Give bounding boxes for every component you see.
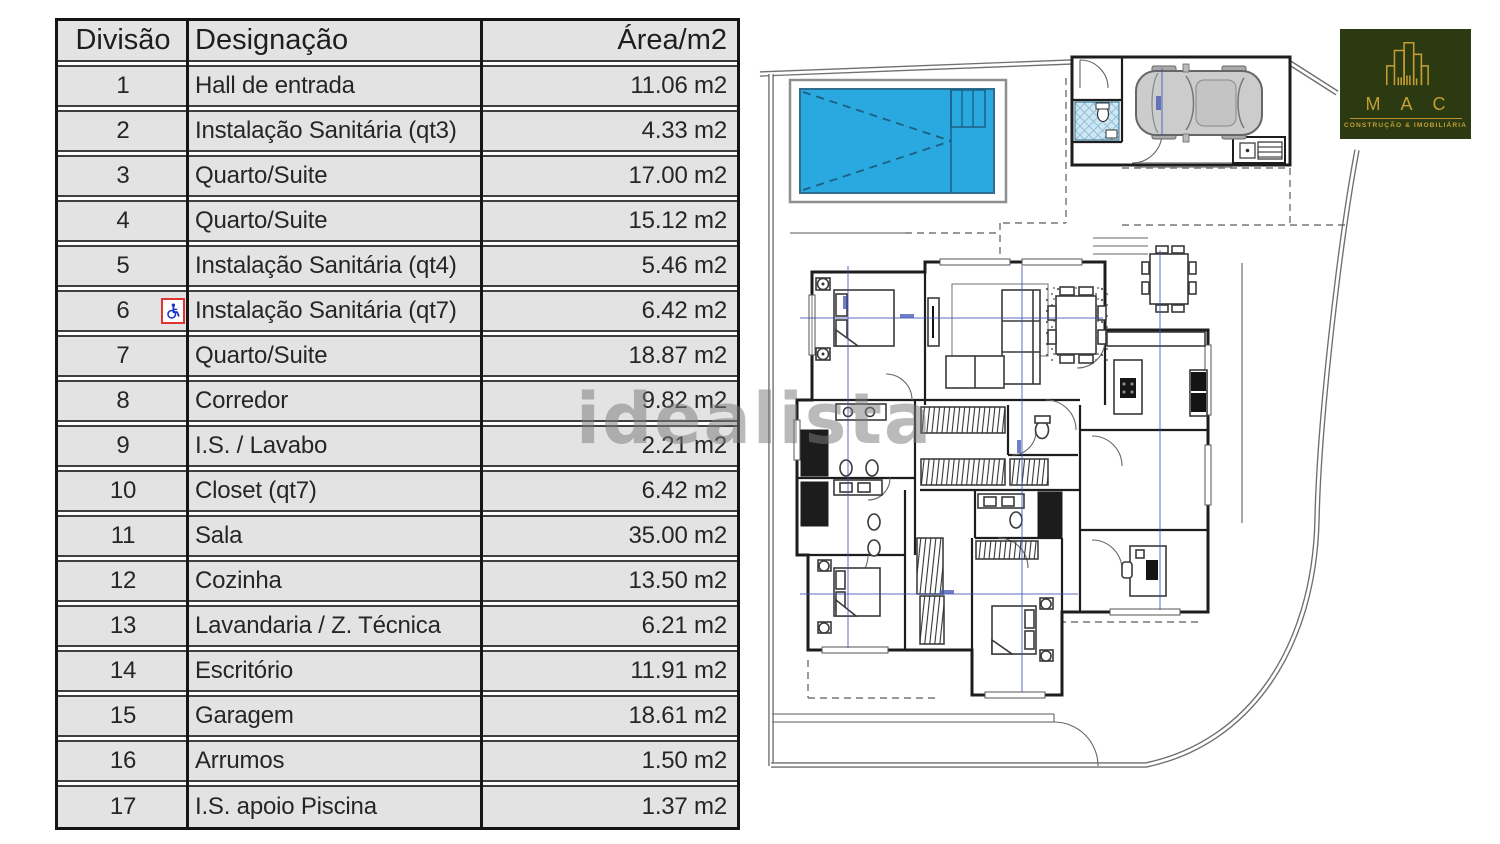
row-designation: Closet (qt7): [188, 477, 482, 505]
header-designation: Designação: [188, 24, 482, 57]
row-area: 18.61 m2: [482, 702, 737, 730]
table-row: 7 Quarto/Suite 18.87 m2: [58, 335, 737, 377]
table-row: 8 Corredor 9.82 m2: [58, 380, 737, 422]
row-area: 6.21 m2: [482, 612, 737, 640]
table-row: 13 Lavandaria / Z. Técnica 6.21 m2: [58, 605, 737, 647]
row-designation: Sala: [188, 522, 482, 550]
table-row: 16 Arrumos 1.50 m2: [58, 740, 737, 782]
table-column-divider: [186, 21, 189, 827]
table-header-row: Divisão Designação Área/m2: [58, 21, 737, 62]
door-arcs: [838, 340, 1122, 585]
toilet: [840, 460, 852, 476]
pool-steps: [951, 90, 985, 127]
table-row: 4 Quarto/Suite 15.12 m2: [58, 200, 737, 242]
toilet: [1098, 107, 1109, 122]
row-division-number: 5: [116, 252, 129, 279]
row-division-number: 8: [116, 387, 129, 414]
storage-nook: [1233, 137, 1285, 163]
table-row: 9 I.S. / Lavabo 2.21 m2: [58, 425, 737, 467]
windows: [794, 259, 1211, 698]
row-division-number: 9: [116, 432, 129, 459]
row-division-number: 4: [116, 207, 129, 234]
garage-door: [1135, 163, 1232, 167]
row-area: 5.46 m2: [482, 252, 737, 280]
row-designation: I.S. / Lavabo: [188, 432, 482, 460]
bathrooms-left: [801, 404, 886, 556]
oven: [1191, 372, 1206, 391]
table-row: 12 Cozinha 13.50 m2: [58, 560, 737, 602]
logo-divider: [1350, 118, 1462, 119]
mac-logo: M A C CONSTRUÇÃO & IMOBILIÁRIA: [1340, 29, 1471, 139]
wheelchair-accessible-icon: [161, 298, 185, 324]
row-area: 1.50 m2: [482, 747, 737, 775]
car: [1136, 64, 1262, 142]
toilet: [1036, 422, 1049, 439]
row-division-number: 14: [110, 657, 136, 684]
row-area: 6.42 m2: [482, 477, 737, 505]
row-designation: Quarto/Suite: [188, 342, 482, 370]
bedroom-middle: [992, 598, 1053, 661]
tv-board: [928, 298, 939, 346]
table-row: 10 Closet (qt7) 6.42 m2: [58, 470, 737, 512]
bidet: [866, 460, 878, 476]
row-designation: Quarto/Suite: [188, 207, 482, 235]
row-division-number: 16: [110, 747, 136, 774]
kitchen: [1107, 332, 1207, 416]
table-row: 5 Instalação Sanitária (qt4) 5.46 m2: [58, 245, 737, 287]
setback-dashed-lines: [808, 78, 1345, 698]
dining-rug: [1044, 286, 1108, 362]
bedroom-suite-top: [816, 278, 894, 360]
row-division-number: 17: [110, 793, 136, 820]
outdoor-table: [1150, 254, 1188, 304]
table-row: 6 Instalação Sanitária (qt7) 6.42 m2: [58, 290, 737, 332]
header-division: Divisão: [58, 24, 188, 57]
desk-chair: [1122, 562, 1132, 578]
dimension-lines: [800, 250, 1160, 692]
bed: [992, 606, 1036, 654]
table-column-divider: [480, 21, 483, 827]
row-area: 13.50 m2: [482, 567, 737, 595]
kitchen-counter: [1107, 332, 1205, 346]
desk: [1130, 546, 1166, 596]
swimming-pool: [790, 80, 1006, 202]
row-designation: Instalação Sanitária (qt7): [188, 297, 482, 325]
row-division-number: 7: [116, 342, 129, 369]
row-area: 15.12 m2: [482, 207, 737, 235]
row-division-number: 13: [110, 612, 136, 639]
header-area: Área/m2: [482, 24, 737, 57]
living-room: [928, 284, 1108, 388]
row-area: 17.00 m2: [482, 162, 737, 190]
row-designation: Garagem: [188, 702, 482, 730]
row-division-number: 12: [110, 567, 136, 594]
row-designation: Instalação Sanitária (qt4): [188, 252, 482, 280]
wardrobes: [917, 407, 1048, 644]
corridor-wc: [1035, 416, 1050, 439]
table-row: 14 Escritório 11.91 m2: [58, 650, 737, 692]
row-designation: Instalação Sanitária (qt3): [188, 117, 482, 145]
row-designation: Cozinha: [188, 567, 482, 595]
row-division-number: 10: [110, 477, 136, 504]
table-body: 1 Hall de entrada 11.06 m2 2: [58, 65, 737, 827]
row-designation: Hall de entrada: [188, 72, 482, 100]
row-area: 1.37 m2: [482, 793, 737, 821]
house: [794, 246, 1211, 698]
bathroom-middle: [978, 492, 1062, 538]
monitor: [1146, 560, 1158, 580]
garage-block: [1072, 57, 1290, 167]
table-row: 11 Sala 35.00 m2: [58, 515, 737, 557]
office: [1122, 546, 1166, 596]
shower: [801, 430, 828, 476]
row-division-number: 15: [110, 702, 136, 729]
row-area: 4.33 m2: [482, 117, 737, 145]
row-division-number: 1: [116, 72, 129, 99]
table-row: 17 I.S. apoio Piscina 1.37 m2: [58, 785, 737, 827]
logo-brand-text: M A C: [1357, 94, 1453, 115]
row-designation: I.S. apoio Piscina: [188, 793, 482, 821]
row-division-number: 3: [116, 162, 129, 189]
logo-tagline: CONSTRUÇÃO & IMOBILIÁRIA: [1344, 122, 1467, 129]
row-designation: Escritório: [188, 657, 482, 685]
dining-table: [1056, 296, 1096, 354]
buildings-icon: [1375, 37, 1437, 92]
row-area: 11.06 m2: [482, 72, 737, 100]
property-boundary: [760, 62, 1357, 766]
row-division-number: 11: [111, 522, 136, 549]
row-division-number: 6: [116, 297, 129, 324]
sink: [1106, 130, 1117, 138]
row-area: 2.21 m2: [482, 432, 737, 460]
bed: [834, 568, 880, 616]
rug: [952, 284, 1048, 356]
table-row: 2 Instalação Sanitária (qt3) 4.33 m2: [58, 110, 737, 152]
row-designation: Corredor: [188, 387, 482, 415]
yard-lines: [772, 233, 1242, 766]
table-row: 1 Hall de entrada 11.06 m2: [58, 65, 737, 107]
row-area: 18.87 m2: [482, 342, 737, 370]
bedroom-left: [818, 560, 880, 633]
outdoor-dining: [1142, 246, 1196, 312]
cooktop: [1120, 378, 1136, 398]
row-area: 35.00 m2: [482, 522, 737, 550]
floorplan-sheet: Divisão Designação Área/m2 1 Hall de ent…: [0, 0, 1500, 844]
bed: [834, 290, 894, 346]
row-division-number: 2: [116, 117, 129, 144]
kitchen-island: [1114, 360, 1142, 414]
areas-table: Divisão Designação Área/m2 1 Hall de ent…: [55, 18, 740, 830]
row-area: 9.82 m2: [482, 387, 737, 415]
row-area: 6.42 m2: [482, 297, 737, 325]
row-designation: Arrumos: [188, 747, 482, 775]
row-designation: Lavandaria / Z. Técnica: [188, 612, 482, 640]
pool-water: [800, 89, 994, 193]
table-row: 3 Quarto/Suite 17.00 m2: [58, 155, 737, 197]
row-area: 11.91 m2: [482, 657, 737, 685]
sofa: [1002, 290, 1040, 384]
row-designation: Quarto/Suite: [188, 162, 482, 190]
pool-wc-floor: [1075, 102, 1119, 140]
table-row: 15 Garagem 18.61 m2: [58, 695, 737, 737]
